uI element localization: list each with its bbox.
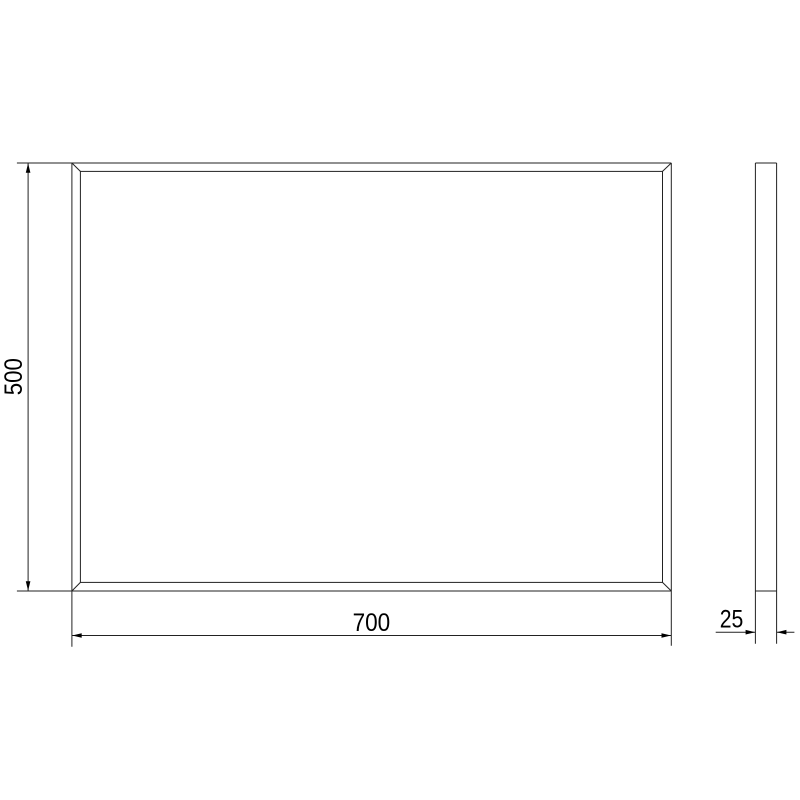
svg-text:500: 500 xyxy=(0,358,28,395)
svg-text:700: 700 xyxy=(353,609,391,637)
svg-text:25: 25 xyxy=(720,606,744,634)
